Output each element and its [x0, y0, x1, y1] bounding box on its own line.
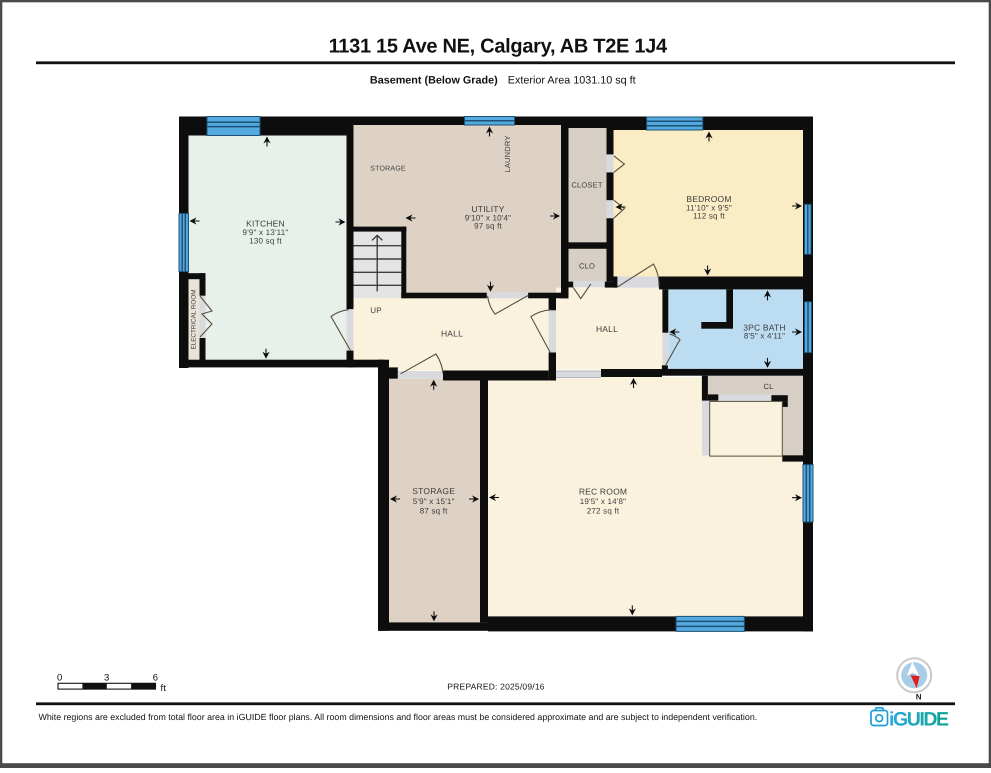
svg-text:97 sq ft: 97 sq ft: [474, 222, 502, 231]
svg-text:STORAGE: STORAGE: [370, 166, 406, 173]
svg-text:0: 0: [57, 673, 62, 684]
svg-text:PREPARED: 2025/09/16: PREPARED: 2025/09/16: [447, 682, 544, 692]
svg-text:CLO: CLO: [579, 261, 595, 270]
svg-text:N: N: [916, 693, 922, 702]
svg-text:3: 3: [104, 673, 109, 684]
svg-text:8'5" x 4'11": 8'5" x 4'11": [744, 331, 785, 340]
svg-text:ft: ft: [161, 683, 167, 694]
svg-text:272 sq ft: 272 sq ft: [587, 507, 620, 516]
svg-text:87 sq ft: 87 sq ft: [420, 506, 448, 515]
svg-text:112 sq ft: 112 sq ft: [693, 212, 725, 221]
svg-text:ELECTRICAL ROOM: ELECTRICAL ROOM: [191, 290, 198, 350]
svg-text:Exterior Area 1031.10 sq ft: Exterior Area 1031.10 sq ft: [508, 75, 636, 87]
svg-text:iGUIDE: iGUIDE: [889, 709, 949, 731]
svg-text:Basement (Below Grade): Basement (Below Grade): [370, 75, 498, 87]
svg-text:KITCHEN: KITCHEN: [246, 218, 285, 228]
svg-text:HALL: HALL: [441, 329, 463, 339]
svg-text:1131 15 Ave NE, Calgary, AB T2: 1131 15 Ave NE, Calgary, AB T2E 1J4: [329, 35, 668, 57]
svg-text:19'5" x 14'8": 19'5" x 14'8": [580, 497, 626, 506]
svg-text:BEDROOM: BEDROOM: [686, 194, 731, 204]
svg-text:CLOSET: CLOSET: [571, 180, 602, 189]
svg-text:CL: CL: [764, 382, 774, 391]
svg-text:6: 6: [153, 673, 158, 684]
svg-text:STORAGE: STORAGE: [412, 486, 455, 496]
svg-text:LAUNDRY: LAUNDRY: [503, 135, 512, 172]
svg-text:9'9" x 13'11": 9'9" x 13'11": [243, 228, 289, 237]
svg-text:HALL: HALL: [596, 324, 618, 334]
svg-text:REC ROOM: REC ROOM: [579, 486, 627, 496]
svg-text:UP: UP: [370, 306, 382, 315]
svg-text:White regions are excluded fro: White regions are excluded from total fl…: [39, 712, 758, 722]
svg-text:130 sq ft: 130 sq ft: [249, 237, 282, 246]
svg-text:5'9" x 15'1": 5'9" x 15'1": [413, 497, 455, 506]
